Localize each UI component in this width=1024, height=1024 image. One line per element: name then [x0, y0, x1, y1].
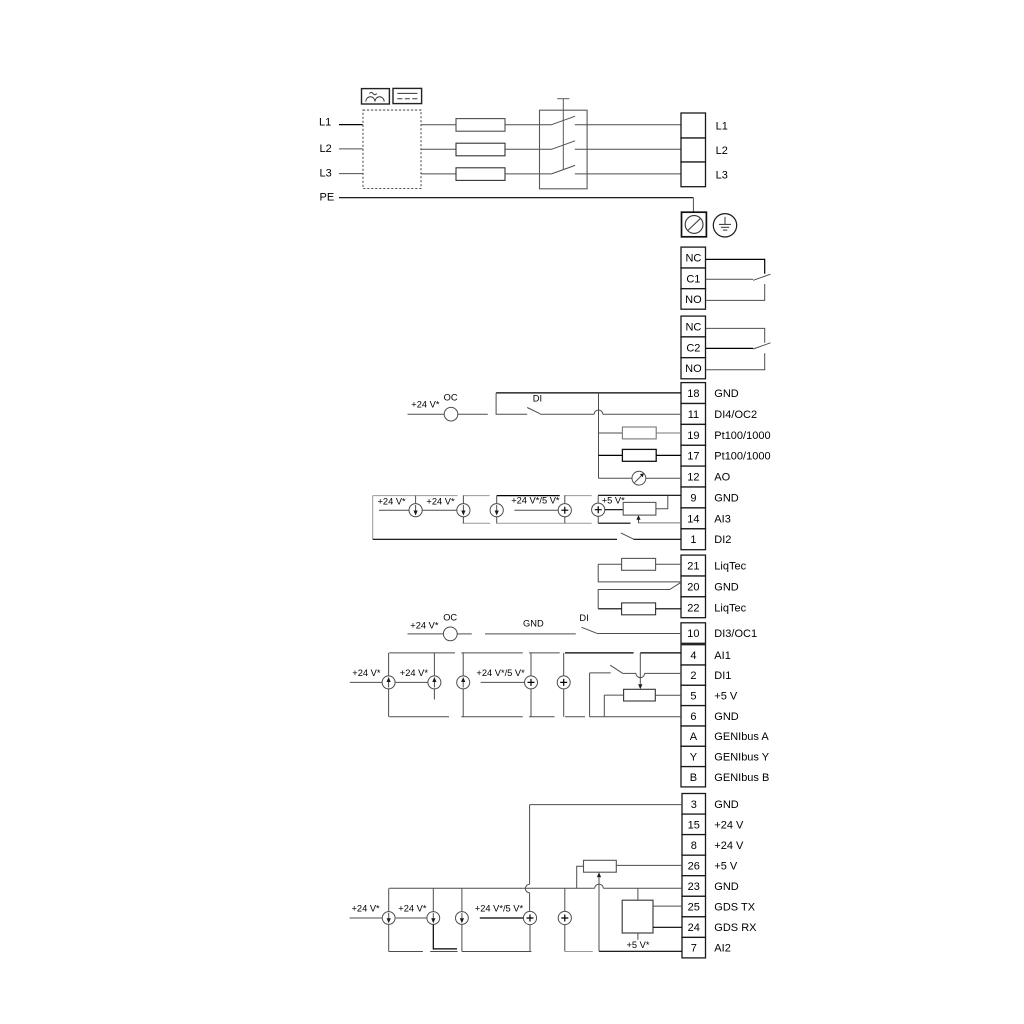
svg-text:L1: L1: [716, 120, 728, 132]
svg-text:NC: NC: [685, 253, 701, 265]
svg-text:9: 9: [690, 492, 696, 504]
svg-text:DI2: DI2: [714, 534, 731, 546]
svg-text:6: 6: [690, 711, 696, 723]
svg-text:C1: C1: [686, 273, 700, 285]
svg-text:DI: DI: [579, 613, 588, 623]
svg-text:L2: L2: [320, 143, 332, 155]
svg-text:2: 2: [690, 670, 696, 682]
svg-text:Pt100/1000: Pt100/1000: [714, 451, 770, 463]
svg-text:3: 3: [691, 799, 697, 811]
svg-text:LiqTec: LiqTec: [714, 561, 746, 573]
svg-text:+24 V*/5 V*: +24 V*/5 V*: [476, 668, 525, 678]
svg-text:OC: OC: [443, 613, 457, 623]
svg-text:23: 23: [688, 881, 700, 893]
svg-text:GENIbus A: GENIbus A: [714, 731, 769, 743]
svg-text:26: 26: [688, 860, 700, 872]
svg-text:AI2: AI2: [714, 943, 731, 955]
svg-text:DI3/OC1: DI3/OC1: [714, 628, 757, 640]
svg-text:GND: GND: [714, 711, 739, 723]
svg-text:AI3: AI3: [714, 513, 731, 525]
svg-text:GDS TX: GDS TX: [714, 902, 755, 914]
svg-text:AI1: AI1: [714, 650, 731, 662]
svg-text:19: 19: [687, 430, 699, 442]
svg-text:+24 V: +24 V: [714, 840, 744, 852]
svg-text:GND: GND: [714, 388, 739, 400]
svg-text:1: 1: [690, 534, 696, 546]
svg-text:+24 V*/5 V*: +24 V*/5 V*: [511, 496, 560, 506]
svg-text:OC: OC: [444, 392, 458, 402]
svg-text:10: 10: [687, 628, 699, 640]
svg-text:11: 11: [688, 409, 699, 421]
svg-text:+24 V*: +24 V*: [378, 496, 407, 506]
svg-text:20: 20: [687, 581, 699, 593]
svg-text:+5 V: +5 V: [714, 691, 738, 703]
svg-text:GND: GND: [523, 619, 544, 629]
svg-text:+5 V*: +5 V*: [627, 940, 650, 950]
svg-text:+5 V*: +5 V*: [602, 496, 625, 506]
svg-text:DI: DI: [533, 393, 542, 403]
svg-text:4: 4: [690, 650, 696, 662]
svg-text:24: 24: [688, 922, 700, 934]
svg-text:GND: GND: [714, 799, 739, 811]
svg-text:A: A: [690, 731, 698, 743]
svg-text:14: 14: [687, 513, 699, 525]
svg-text:+24 V*: +24 V*: [352, 668, 381, 678]
svg-text:L3: L3: [716, 169, 728, 181]
svg-text:GENIbus Y: GENIbus Y: [714, 751, 769, 763]
svg-text:PE: PE: [320, 192, 335, 204]
svg-text:+24 V*: +24 V*: [411, 400, 440, 410]
svg-text:21: 21: [687, 561, 699, 573]
svg-text:L3: L3: [320, 167, 332, 179]
svg-text:GND: GND: [714, 581, 739, 593]
svg-text:7: 7: [691, 943, 697, 955]
svg-text:+24 V*: +24 V*: [410, 620, 439, 630]
svg-text:25: 25: [688, 902, 700, 914]
svg-text:22: 22: [687, 602, 699, 614]
svg-text:17: 17: [687, 451, 699, 463]
svg-text:LiqTec: LiqTec: [714, 602, 746, 614]
svg-text:15: 15: [688, 819, 700, 831]
svg-text:C2: C2: [686, 342, 700, 354]
svg-text:8: 8: [691, 840, 697, 852]
svg-text:GDS RX: GDS RX: [714, 922, 757, 934]
svg-text:NO: NO: [685, 294, 702, 306]
svg-text:+5 V: +5 V: [714, 860, 738, 872]
svg-text:NO: NO: [685, 363, 702, 375]
svg-text:GND: GND: [714, 881, 739, 893]
svg-text:5: 5: [690, 691, 696, 703]
svg-text:L2: L2: [716, 145, 728, 157]
svg-text:12: 12: [687, 472, 699, 484]
svg-text:DI4/OC2: DI4/OC2: [714, 409, 757, 421]
svg-text:Y: Y: [690, 751, 698, 763]
svg-text:GND: GND: [714, 492, 739, 504]
svg-text:+24 V: +24 V: [714, 819, 744, 831]
svg-text:L1: L1: [319, 117, 331, 129]
svg-text:+24 V*: +24 V*: [400, 668, 429, 678]
svg-text:B: B: [690, 772, 697, 784]
svg-text:AO: AO: [714, 472, 730, 484]
svg-text:+24 V*/5 V*: +24 V*/5 V*: [475, 903, 524, 913]
svg-text:DI1: DI1: [714, 670, 731, 682]
svg-text:+24 V*: +24 V*: [426, 496, 455, 506]
svg-text:18: 18: [687, 388, 699, 400]
svg-text:+24 V*: +24 V*: [398, 904, 427, 914]
svg-text:NC: NC: [685, 322, 701, 334]
svg-text:+24 V*: +24 V*: [352, 904, 381, 914]
svg-text:GENIbus B: GENIbus B: [714, 772, 769, 784]
svg-text:Pt100/1000: Pt100/1000: [714, 430, 770, 442]
